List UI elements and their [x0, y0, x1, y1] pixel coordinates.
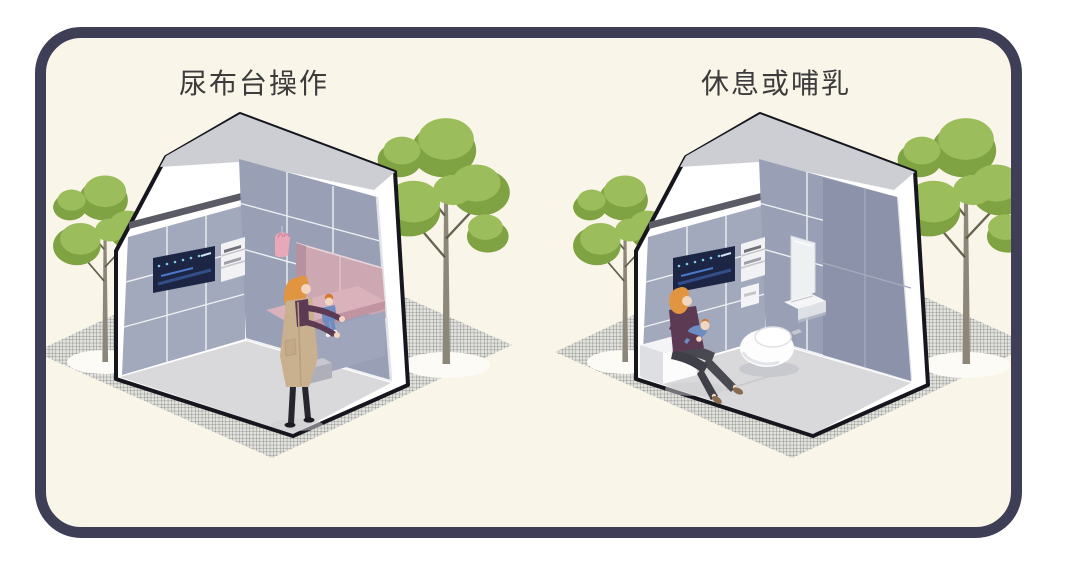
isometric-scenes: [35, 98, 1022, 478]
pod-right: [555, 114, 1022, 458]
panel-title-left: 尿布台操作: [54, 62, 454, 102]
pod-left: [35, 114, 512, 458]
panel-title-right: 休息或哺乳: [576, 62, 976, 102]
info-card: 尿布台操作 休息或哺乳: [35, 27, 1022, 538]
